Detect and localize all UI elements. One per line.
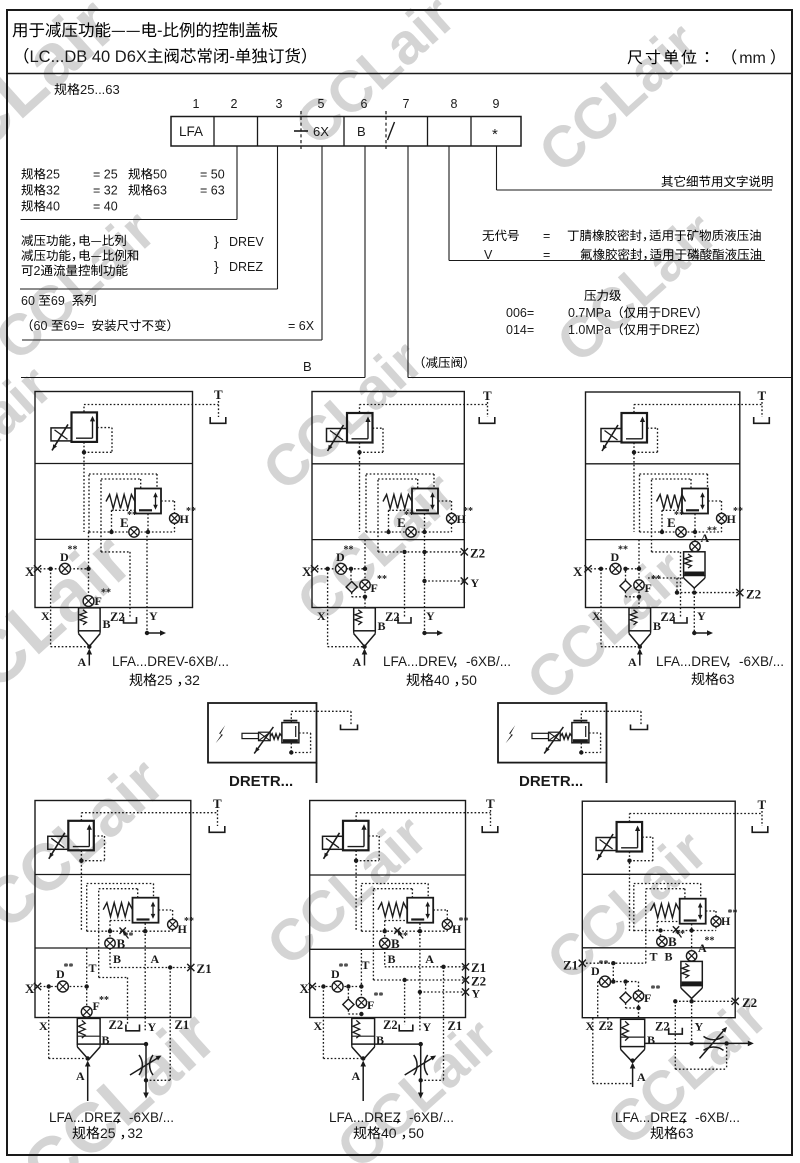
svg-text:**: ** [459, 916, 469, 927]
svg-text:25: 25 [46, 168, 60, 182]
svg-text:Y: Y [149, 609, 158, 623]
svg-text:32: 32 [184, 672, 200, 688]
svg-text:DREZ: DREZ [229, 260, 263, 274]
svg-text:Z2: Z2 [385, 610, 400, 624]
svg-text:**: ** [651, 574, 661, 585]
svg-text:**: ** [728, 908, 738, 919]
svg-text:**: ** [184, 916, 194, 927]
svg-text:X: X [573, 564, 583, 579]
svg-text:Y: Y [423, 1020, 432, 1034]
svg-text:LFA...DREV: LFA...DREV [656, 654, 729, 669]
svg-text:B: B [388, 952, 396, 966]
svg-text:25...63: 25...63 [80, 82, 120, 97]
svg-text:-6XB/...: -6XB/... [695, 1110, 740, 1125]
svg-text:Z1: Z1 [197, 961, 212, 976]
svg-text:DRETR...: DRETR... [229, 773, 293, 790]
svg-text:63: 63 [719, 671, 735, 687]
svg-text:A: A [78, 655, 87, 669]
svg-text:LFA: LFA [179, 124, 203, 139]
svg-text:B: B [376, 1033, 384, 1047]
svg-text:mm: mm [739, 50, 766, 67]
svg-text:25: 25 [100, 1125, 116, 1141]
svg-text:LFA...DREV: LFA...DREV [383, 654, 456, 669]
svg-text:8: 8 [451, 97, 458, 111]
svg-text:X: X [317, 609, 326, 623]
svg-text:**: ** [64, 962, 74, 973]
svg-text:**: ** [68, 545, 78, 556]
svg-text:**: ** [705, 936, 715, 947]
svg-text:2: 2 [231, 97, 238, 111]
svg-text:0.7MPa: 0.7MPa [568, 306, 611, 320]
svg-text:X: X [302, 564, 312, 579]
svg-text:X: X [25, 564, 35, 579]
svg-text:A: A [637, 1070, 646, 1084]
svg-text:DRETR...: DRETR... [519, 773, 583, 790]
svg-text:A: A [352, 1069, 361, 1083]
svg-text:Z2: Z2 [470, 546, 485, 561]
svg-text:Z2: Z2 [746, 587, 761, 602]
svg-text:T: T [758, 388, 767, 403]
svg-text:= 32: = 32 [93, 184, 118, 198]
svg-text:Y: Y [471, 576, 480, 590]
svg-text:B: B [102, 1033, 110, 1047]
svg-text:**: ** [344, 545, 354, 556]
svg-text:**: ** [186, 506, 196, 517]
svg-text:Z2: Z2 [661, 610, 676, 624]
svg-text:}: } [214, 258, 219, 274]
svg-text:5: 5 [318, 97, 325, 111]
svg-text:T: T [483, 388, 492, 403]
svg-text:40: 40 [46, 200, 60, 214]
svg-text:DREZ: DREZ [661, 323, 695, 337]
svg-text:Y: Y [148, 1020, 157, 1034]
svg-text:50: 50 [153, 168, 167, 182]
svg-text:=: = [543, 229, 550, 243]
svg-text:Z2: Z2 [109, 1018, 124, 1032]
svg-text:**: ** [339, 962, 349, 973]
svg-text:T: T [758, 797, 767, 812]
svg-text:B: B [303, 359, 312, 374]
svg-text:T: T [650, 950, 658, 964]
svg-text:Y: Y [697, 609, 706, 623]
svg-text:V: V [484, 248, 493, 262]
svg-text:**: ** [707, 526, 717, 537]
svg-text:6: 6 [361, 97, 368, 111]
svg-text:B: B [357, 124, 366, 139]
svg-text:2: 2 [34, 264, 41, 278]
svg-text:9: 9 [493, 97, 500, 111]
svg-text:X: X [41, 609, 50, 623]
svg-text:= 6X: = 6X [288, 319, 315, 333]
svg-text:Y: Y [472, 987, 481, 1001]
svg-text:A: A [76, 1069, 85, 1083]
svg-text:1.0MPa: 1.0MPa [568, 323, 611, 337]
svg-text:Z1: Z1 [563, 958, 578, 973]
svg-text:T: T [213, 796, 222, 811]
svg-text:-6XB/...: -6XB/... [129, 1110, 174, 1125]
svg-text:T: T [89, 961, 97, 975]
svg-text:50: 50 [461, 672, 477, 688]
svg-text:A: A [425, 952, 434, 966]
svg-text:X: X [25, 981, 35, 996]
svg-text:7: 7 [403, 97, 410, 111]
svg-text:40: 40 [434, 672, 450, 688]
svg-text:**: ** [127, 510, 137, 521]
svg-text:*: * [492, 126, 498, 143]
svg-text:-: - [157, 22, 163, 40]
svg-text:Y: Y [426, 609, 435, 623]
svg-text:T: T [486, 796, 495, 811]
svg-text:**: ** [404, 510, 414, 521]
svg-text:B: B [113, 952, 121, 966]
svg-text:LFA...DREZ: LFA...DREZ [329, 1110, 401, 1125]
svg-text:= 50: = 50 [200, 168, 225, 182]
svg-text:006=: 006= [506, 306, 534, 320]
svg-text:**: ** [463, 506, 473, 517]
svg-text:DREV: DREV [661, 306, 696, 320]
svg-text:32: 32 [46, 184, 60, 198]
svg-text:X: X [300, 981, 310, 996]
svg-text:25: 25 [157, 672, 173, 688]
svg-text:3: 3 [276, 97, 283, 111]
svg-text:Z2: Z2 [383, 1018, 398, 1032]
svg-text:40: 40 [381, 1125, 397, 1141]
svg-text:=: = [543, 248, 550, 262]
svg-text:X: X [592, 609, 601, 623]
svg-text:60: 60 [34, 319, 48, 333]
svg-text:A: A [628, 655, 637, 669]
svg-text:Z2: Z2 [599, 1019, 614, 1033]
svg-text:Z1: Z1 [448, 1019, 463, 1033]
svg-text:LFA...DREZ: LFA...DREZ [615, 1110, 687, 1125]
svg-text:**: ** [99, 995, 109, 1006]
svg-text:60: 60 [21, 294, 35, 308]
svg-text:= 25: = 25 [93, 168, 118, 182]
svg-text:**: ** [618, 545, 628, 556]
svg-text:**: ** [374, 991, 384, 1002]
svg-text:-6XB/...: -6XB/... [409, 1110, 454, 1125]
svg-text:X: X [314, 1019, 323, 1033]
svg-text:69=: 69= [63, 319, 84, 333]
svg-text:**: ** [101, 588, 111, 599]
svg-text:63: 63 [153, 184, 167, 198]
svg-text:**: ** [651, 984, 661, 995]
svg-text:6X: 6X [313, 124, 329, 139]
svg-text:A: A [151, 952, 160, 966]
svg-text:**: ** [733, 506, 743, 517]
svg-text:LFA...DREV-6XB/...: LFA...DREV-6XB/... [112, 654, 229, 669]
svg-text:50: 50 [408, 1125, 424, 1141]
svg-text:Z1: Z1 [175, 1018, 190, 1032]
svg-text:}: } [214, 233, 219, 249]
svg-text:**: ** [377, 574, 387, 585]
svg-text:Z2: Z2 [655, 1020, 670, 1034]
svg-text:Z2: Z2 [110, 610, 125, 624]
svg-text:014=: 014= [506, 323, 534, 337]
svg-text:DREV: DREV [229, 235, 264, 249]
svg-text:-6XB/...: -6XB/... [466, 654, 511, 669]
svg-text:**: ** [674, 510, 684, 521]
svg-text:LFA...DREZ: LFA...DREZ [49, 1110, 121, 1125]
svg-text:Y: Y [695, 1020, 704, 1034]
svg-text:1: 1 [193, 97, 200, 111]
svg-text:-: - [229, 48, 235, 66]
svg-text:T: T [362, 958, 370, 972]
svg-text:69: 69 [51, 294, 65, 308]
svg-text:T: T [214, 387, 223, 402]
svg-text:LC...DB 40 D6X: LC...DB 40 D6X [30, 48, 147, 66]
svg-text:B: B [665, 950, 673, 964]
svg-text:32: 32 [127, 1125, 143, 1141]
svg-text:= 40: = 40 [93, 200, 118, 214]
svg-text:**: ** [599, 959, 609, 970]
svg-text:B: B [647, 1033, 655, 1047]
svg-text:X: X [39, 1019, 48, 1033]
svg-text:X: X [586, 1019, 595, 1033]
svg-text:Z2: Z2 [742, 995, 757, 1010]
svg-text:63: 63 [678, 1125, 694, 1141]
svg-text:= 63: = 63 [200, 184, 225, 198]
svg-text:-6XB/...: -6XB/... [739, 654, 784, 669]
svg-text:A: A [353, 655, 362, 669]
